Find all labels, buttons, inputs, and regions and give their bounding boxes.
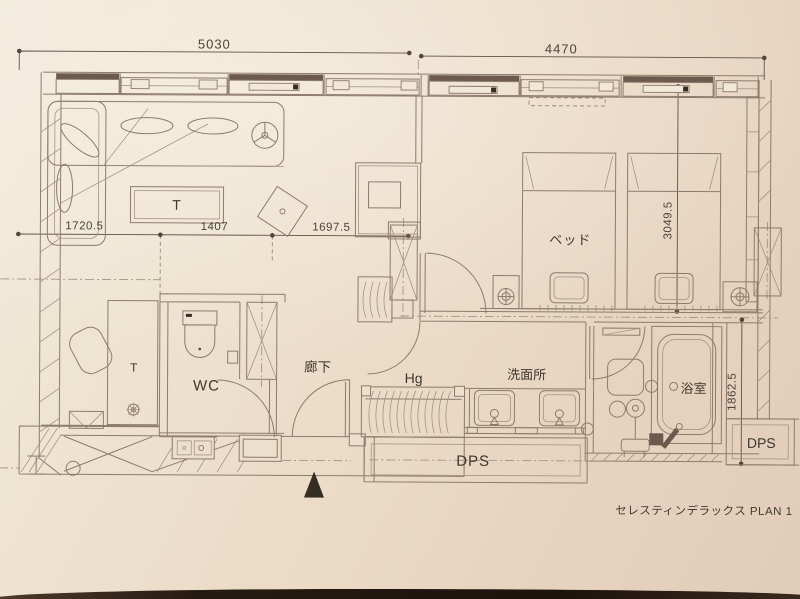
dim-mid-right-label: 1697.5 xyxy=(312,222,350,234)
bedroom-furniture xyxy=(480,152,764,311)
dim-bed-depth-label: 3049.5 xyxy=(662,201,674,239)
plan-caption: セレスティンデラックス PLAN 1 xyxy=(615,502,792,519)
closets xyxy=(354,163,465,438)
dim-top-right-label: 4470 xyxy=(545,41,578,56)
floor-plan-sheet: 5030 4470 1720.5 1407 1697.5 3049.5 1862… xyxy=(0,0,800,599)
dps-main-label: DPS xyxy=(456,453,490,470)
living-furniture xyxy=(46,101,308,429)
floor-plan-photo: 5030 4470 1720.5 1407 1697.5 3049.5 1862… xyxy=(0,0,800,599)
room-label-bed: ベッド xyxy=(549,229,591,248)
room-label-desk-table: T xyxy=(130,361,137,375)
room-label-bathroom: 浴室 xyxy=(680,378,706,397)
dim-bath-depth-label: 1862.5 xyxy=(726,373,738,411)
exterior-walls xyxy=(19,72,771,479)
dim-mid-center-label: 1407 xyxy=(201,221,229,233)
interior-walls xyxy=(159,95,764,464)
shafts xyxy=(247,94,782,382)
dps-right-label: DPS xyxy=(747,435,776,451)
room-label-hanger-rack: Hg xyxy=(405,370,423,386)
room-label-corridor: 廊下 xyxy=(304,355,331,375)
room-label-living-table: T xyxy=(172,197,181,213)
room-label-washroom: 洗面所 xyxy=(507,364,546,383)
dim-mid-left-label: 1720.5 xyxy=(65,220,103,232)
photo-bottom-edge xyxy=(0,589,800,599)
doors xyxy=(217,252,645,439)
dim-top-left-label: 5030 xyxy=(198,36,231,51)
room-label-wc: WC xyxy=(193,377,220,394)
